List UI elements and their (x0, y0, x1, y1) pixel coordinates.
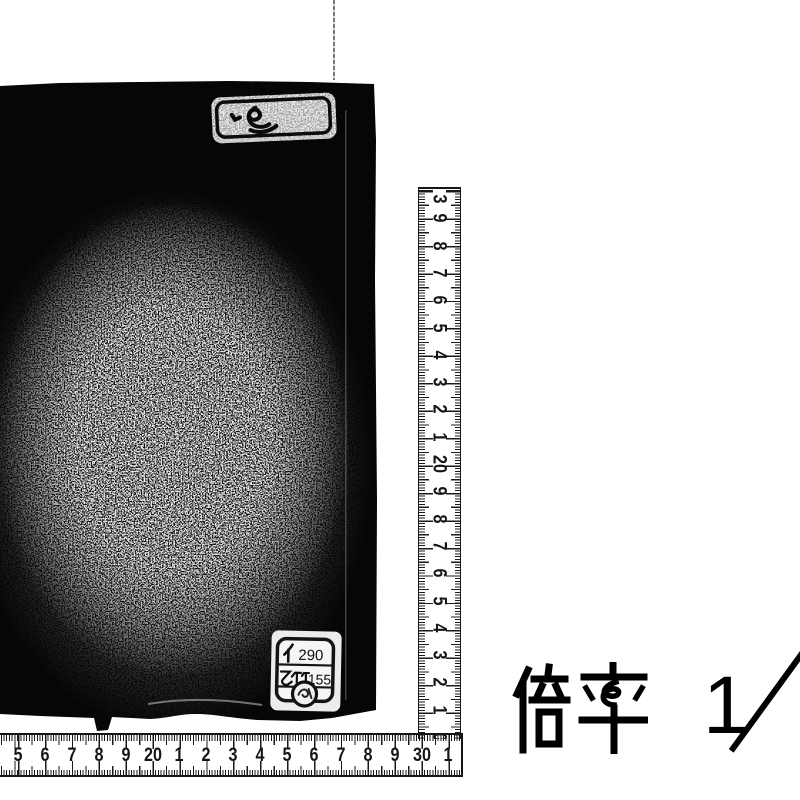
call-number-row1: 290 (298, 647, 323, 665)
ruler-number: 9 (430, 214, 449, 223)
ruler-number: 5 (14, 746, 23, 765)
ruler-number: 8 (94, 746, 103, 765)
ruler-number: 7 (430, 268, 449, 277)
owner-stamp-icon (292, 682, 316, 706)
call-number-label: 290 155 (270, 630, 342, 711)
ruler-number: 7 (430, 541, 449, 550)
ruler-number: 20 (430, 455, 449, 473)
ruler-number: 1 (430, 705, 449, 714)
ruler-number: 7 (67, 746, 76, 765)
ruler-number: 4 (430, 350, 449, 359)
ruler-number: 5 (430, 323, 449, 332)
cover-scratch-line (345, 110, 347, 700)
ruler-number: 2 (202, 746, 211, 765)
ruler-number: 8 (430, 241, 449, 250)
ruler-number: 6 (430, 569, 449, 578)
ruler-number: 8 (363, 746, 372, 765)
book-cover-photo: 290 155 (0, 80, 378, 732)
ruler-number: 0 (430, 733, 449, 739)
title-slip (211, 92, 337, 143)
ruler-number: 9 (430, 487, 449, 496)
ruler-number: 5 (283, 746, 292, 765)
ruler-number: 20 (144, 746, 162, 765)
ruler-number: 4 (256, 746, 265, 765)
ruler-number: 4 (430, 623, 449, 632)
ruler-number: 2 (430, 405, 449, 414)
ruler-number: 3 (430, 651, 449, 660)
magnification-kanji-icon (512, 662, 648, 754)
ruler-number: 1 (444, 746, 453, 765)
alignment-guide-line (333, 0, 335, 80)
ruler-number: 3 (229, 746, 238, 765)
ruler-number: 30 (413, 746, 431, 765)
ruler-number: 9 (390, 746, 399, 765)
ruler-number: 8 (430, 514, 449, 523)
ruler-number: 6 (40, 746, 49, 765)
ruler-number: 6 (309, 746, 318, 765)
horizontal-ruler: 5678920123456789301 (0, 733, 463, 777)
ruler-number: 6 (430, 296, 449, 305)
ruler-number: 3 (430, 378, 449, 387)
ruler-number: 7 (336, 746, 345, 765)
ruler-number: 1 (430, 432, 449, 441)
vertical-ruler: 3987654321209876543210 (418, 187, 461, 739)
scanned-page: { "page": { "background_color": "#ffffff… (0, 0, 800, 800)
ruler-number: 2 (430, 678, 449, 687)
ruler-number: 5 (430, 596, 449, 605)
ruler-number: 3 (430, 195, 449, 204)
ruler-number: 1 (175, 746, 184, 765)
ruler-number: 9 (121, 746, 130, 765)
